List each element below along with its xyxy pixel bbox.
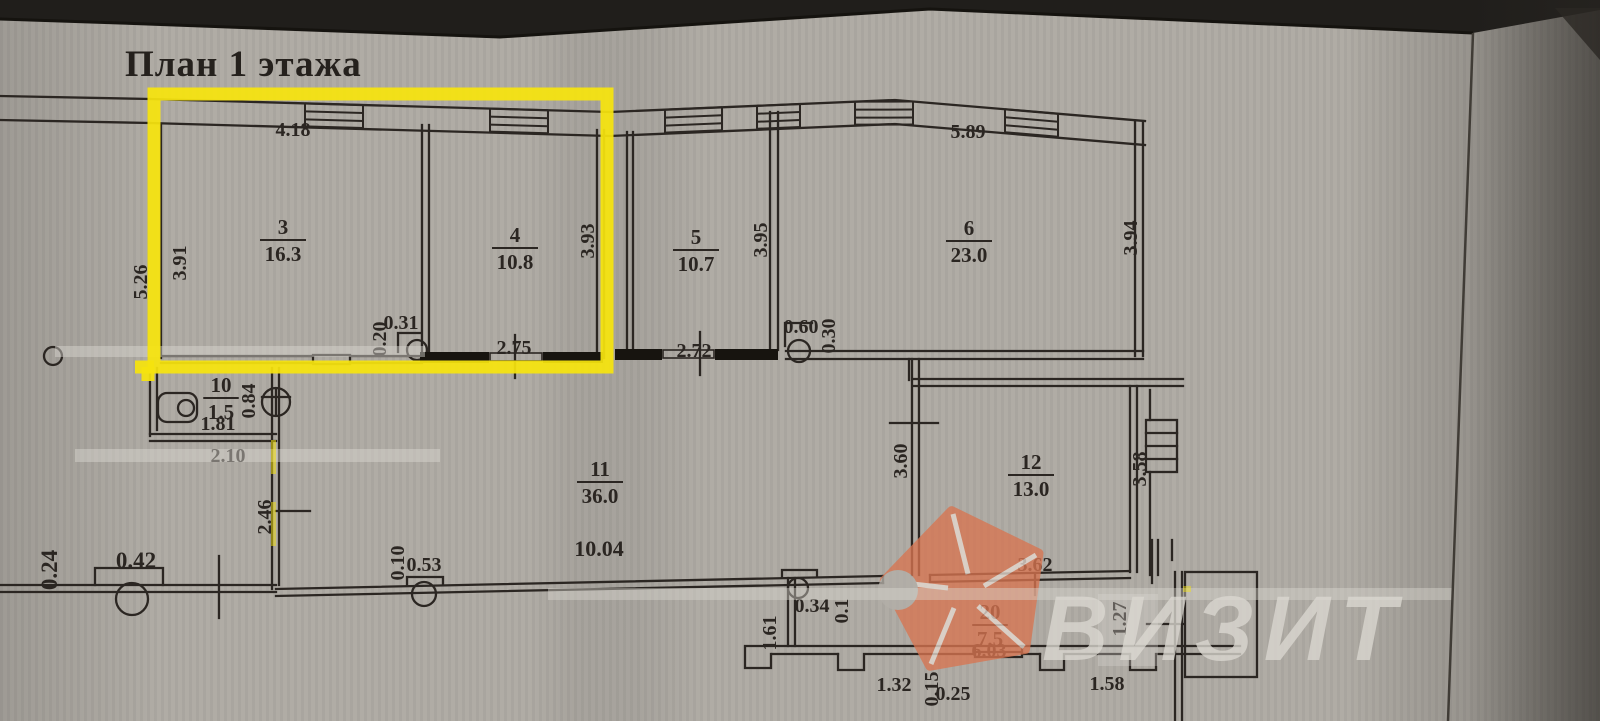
dimension-label: 3.91 [169, 246, 191, 281]
dimension-label: 0.24 [37, 549, 62, 590]
scanned-floor-plan: 316.3410.8510.7623.0101.51136.01213.0207… [0, 0, 1600, 721]
dimension-label: 1.81 [201, 413, 236, 435]
dimension-label: 0.1 [831, 599, 853, 624]
room-number: 12 [1021, 450, 1042, 474]
dimension-label: 0.53 [407, 554, 442, 576]
dimension-label: 3.58 [1129, 452, 1151, 487]
room-number: 6 [964, 216, 975, 240]
room-number: 3 [278, 215, 289, 239]
dimension-label: 4.18 [276, 119, 311, 141]
room-number: 11 [590, 457, 610, 481]
dimension-label: 3.94 [1120, 221, 1142, 256]
highlight-rectangle [135, 94, 1191, 592]
dimension-label: 1.61 [759, 616, 781, 651]
dimension-label: 1.32 [877, 674, 912, 696]
dimension-label: 0.60 [784, 316, 819, 338]
dimension-label: 5.89 [951, 121, 986, 143]
dimension-label: 10.04 [574, 536, 624, 561]
room-area: 13.0 [1013, 477, 1050, 501]
dimension-label: 3.60 [890, 444, 912, 479]
dimension-label: 3.95 [750, 223, 772, 258]
dimension-label: 0.31 [384, 312, 419, 334]
dimension-label: 3.93 [577, 224, 599, 259]
room-number: 10 [211, 373, 232, 397]
room-number: 4 [510, 223, 521, 247]
room-area: 10.7 [678, 252, 715, 276]
room-area: 16.3 [265, 242, 302, 266]
floor-plan-svg: 316.3410.8510.7623.0101.51136.01213.0207… [0, 0, 1600, 721]
room-area: 23.0 [951, 243, 988, 267]
dimension-label: 0.30 [818, 319, 840, 354]
dimension-label: 0.84 [238, 384, 260, 419]
dimension-label: 0.42 [116, 548, 156, 573]
dimension-label: 2.75 [497, 337, 532, 359]
room-area: 10.8 [497, 250, 534, 274]
dimension-label: 0.25 [936, 683, 971, 705]
room-number: 5 [691, 225, 702, 249]
page-title: План 1 этажа [125, 44, 362, 85]
dimension-label: 2.72 [677, 340, 712, 362]
room-area: 36.0 [582, 484, 619, 508]
